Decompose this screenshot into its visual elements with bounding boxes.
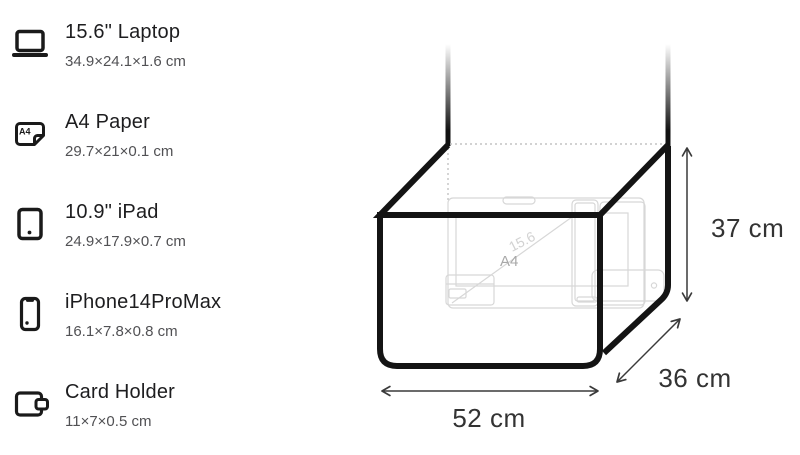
height-label: 37 cm bbox=[711, 213, 784, 243]
ghost-laptop-lid bbox=[600, 202, 645, 305]
depth-label: 36 cm bbox=[658, 363, 731, 393]
bag-outline bbox=[380, 145, 668, 366]
dimension-height: 37 cm bbox=[687, 148, 784, 301]
dimension-width: 52 cm bbox=[382, 391, 598, 433]
bag-diagram: A4 15.6 52 cm 37 cm 36 cm bbox=[0, 0, 800, 455]
width-label: 52 cm bbox=[452, 403, 525, 433]
strap-right bbox=[666, 44, 671, 146]
strap-left bbox=[446, 44, 451, 146]
bag-dimensions-infographic: 15.6" Laptop 34.9×24.1×1.6 cm A4 A4 Pape… bbox=[0, 0, 800, 455]
dimension-depth: 36 cm bbox=[617, 319, 732, 393]
ghost-a4-label: A4 bbox=[500, 253, 518, 270]
bag-front-face bbox=[380, 215, 600, 366]
ghost-laptop-size-label: 15.6 bbox=[506, 228, 538, 255]
